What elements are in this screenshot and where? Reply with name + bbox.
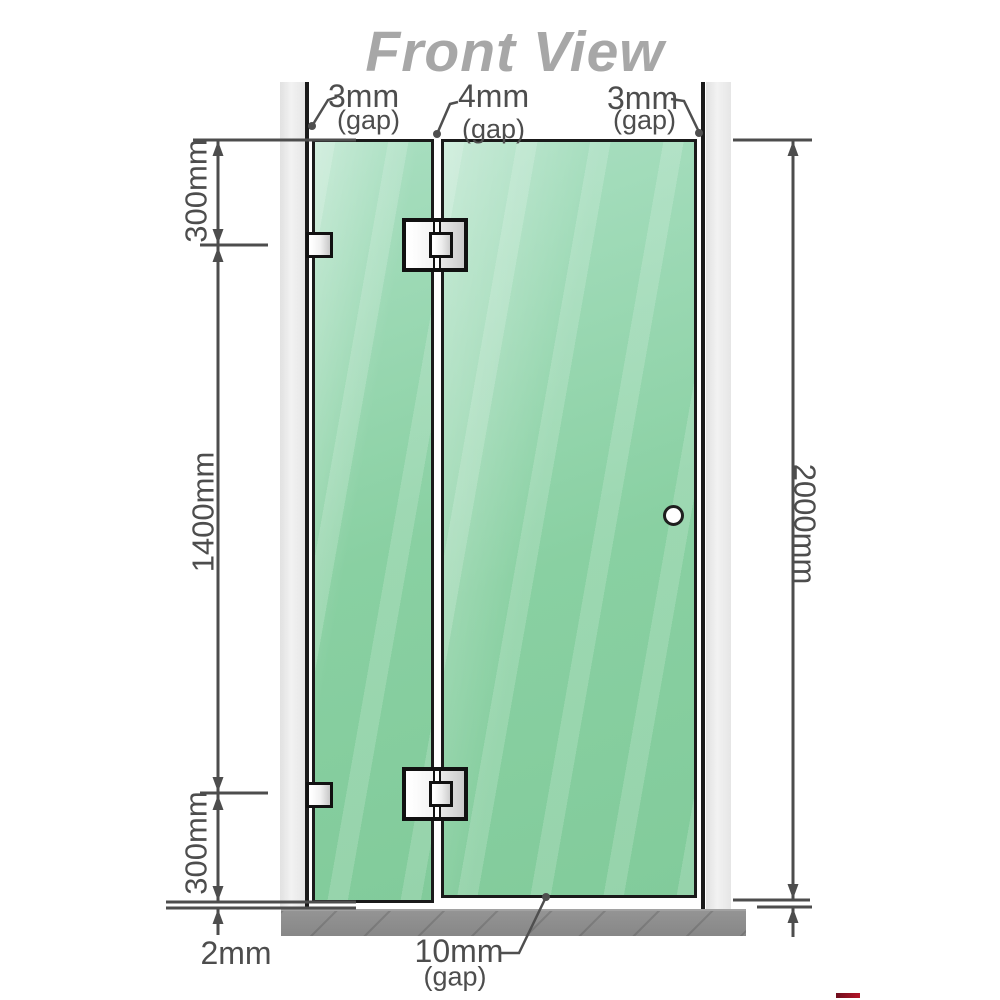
right-wall-edge-line (701, 82, 705, 909)
top-wall-bracket (306, 232, 333, 258)
gap-label-left-unit: (gap) (337, 107, 400, 134)
gap-label-middle-unit: (gap) (462, 116, 525, 143)
dim-label-1400: 1400mm (188, 452, 219, 573)
dim-label-2mm: 2mm (200, 937, 271, 969)
diagram-canvas: Front View (0, 0, 1000, 1000)
dim-label-2000: 2000mm (790, 464, 821, 585)
door-glass-panel (441, 139, 697, 898)
gap-label-bottom-unit: (gap) (423, 964, 486, 991)
bottom-hinge (402, 767, 468, 821)
partial-watermark (836, 993, 860, 998)
hinge-bridge (429, 781, 453, 807)
top-hinge (402, 218, 468, 272)
right-wall-channel (706, 82, 731, 909)
gap-label-middle-value: 4mm (458, 80, 529, 112)
gap-label-right-unit: (gap) (613, 107, 676, 134)
dim-label-300-top: 300mm (181, 139, 212, 242)
bottom-wall-bracket (306, 782, 333, 808)
door-knob (663, 505, 684, 526)
page-title: Front View (30, 24, 1000, 81)
floor-base (281, 909, 746, 936)
left-wall-channel (280, 82, 305, 909)
dim-label-300-bottom: 300mm (181, 791, 212, 894)
hinge-bridge (429, 232, 453, 258)
